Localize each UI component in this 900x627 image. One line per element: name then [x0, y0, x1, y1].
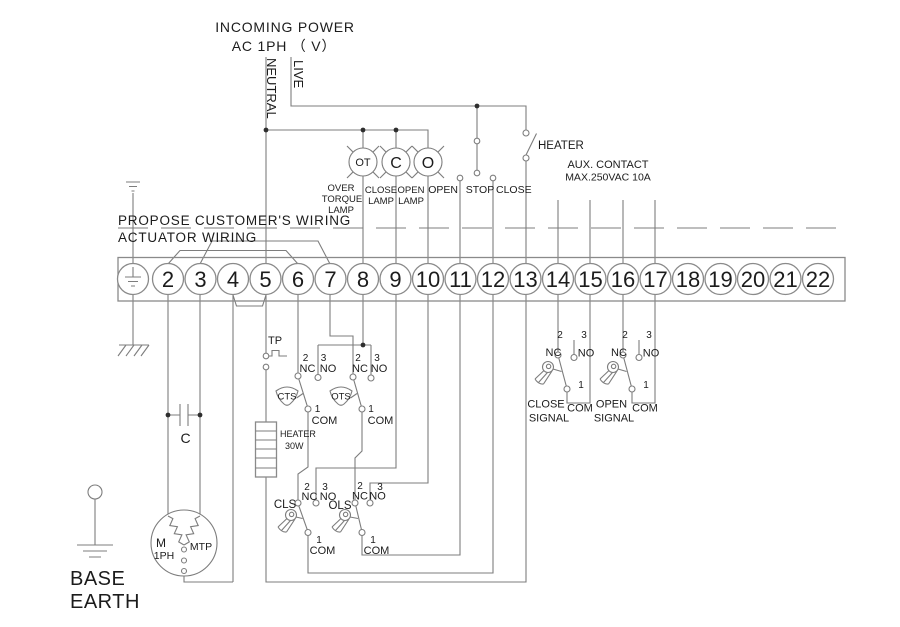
com-label: COM — [312, 415, 338, 427]
open-lamp-label: LAMP — [398, 196, 424, 207]
no-label: NO — [578, 348, 595, 360]
motor-mtp-label: MTP — [190, 541, 212, 553]
nc-label: NC — [611, 347, 627, 359]
terminal-number: 21 — [773, 267, 797, 292]
nc-label: NC — [546, 347, 562, 359]
com-number: 1 — [315, 404, 321, 415]
terminal-number: 15 — [578, 267, 602, 292]
com-number: 1 — [368, 404, 374, 415]
heater-resistor-power: 30W — [285, 441, 304, 451]
terminal-number: 22 — [806, 267, 830, 292]
heater-resistor-label: HEATER — [280, 429, 316, 439]
aux-contact-line2: MAX.250VAC 10A — [565, 172, 651, 184]
ols-label: OLS — [328, 500, 351, 512]
open-signal-label: OPEN — [596, 399, 627, 411]
com-label: COM — [310, 545, 336, 557]
com-number: 1 — [578, 380, 584, 391]
motor-label: M — [156, 536, 166, 550]
terminal-number: 5 — [259, 267, 271, 292]
aux-contact-line1: AUX. CONTACT — [567, 159, 648, 171]
live-wire-label: LIVE — [291, 60, 306, 89]
no-number: 3 — [646, 330, 652, 341]
no-number: 3 — [581, 330, 587, 341]
page-title: INCOMING POWER — [215, 19, 355, 35]
over-torque-lamp-icon: OT — [347, 146, 379, 178]
open-signal-label: SIGNAL — [594, 413, 634, 425]
terminal-number: 17 — [643, 267, 667, 292]
nc-number: 2 — [622, 330, 628, 341]
terminal-number: 7 — [324, 267, 336, 292]
nc-label: NC — [300, 363, 316, 375]
terminal-number: 19 — [708, 267, 732, 292]
close-signal-label: SIGNAL — [529, 413, 569, 425]
lamp-symbol: O — [422, 155, 434, 172]
lamp-symbol: OT — [355, 157, 371, 169]
com-label: COM — [368, 415, 394, 427]
tp-label: TP — [268, 335, 282, 347]
terminal-number: 6 — [292, 267, 304, 292]
close-button-label: CLOSE — [496, 184, 532, 196]
com-label: COM — [632, 403, 658, 415]
over-torque-lamp-label: TORQUE — [322, 194, 362, 205]
actuator-wiring-label: ACTUATOR WIRING — [118, 230, 257, 245]
nc-label: NC — [302, 491, 318, 503]
cts-label: CTS — [278, 392, 297, 403]
com-label: COM — [364, 545, 390, 557]
close-lamp-label: CLOSE — [365, 185, 397, 196]
neutral-wire-label: NEUTRAL — [264, 58, 279, 119]
no-label: NO — [320, 363, 337, 375]
nc-number: 2 — [557, 330, 563, 341]
terminal-number: 11 — [449, 267, 472, 292]
close-lamp-icon: C — [380, 146, 412, 178]
terminal-earth — [118, 264, 149, 295]
terminal-number: 4 — [227, 267, 239, 292]
terminal-number: 20 — [741, 267, 765, 292]
terminal-number: 13 — [513, 267, 537, 292]
no-label: NO — [643, 348, 660, 360]
terminal-number: 14 — [546, 267, 570, 292]
terminal-number: 3 — [194, 267, 206, 292]
base-earth-label: EARTH — [70, 591, 140, 613]
com-label: COM — [567, 403, 593, 415]
open-button-label: OPEN — [428, 184, 458, 196]
cls-label: CLS — [274, 499, 297, 511]
open-lamp-icon: O — [412, 146, 444, 178]
heater-switch-label: HEATER — [538, 140, 584, 152]
terminal-number: 2 — [162, 267, 174, 292]
terminal-number: 8 — [357, 267, 369, 292]
nc-label: NC — [352, 363, 368, 375]
close-lamp-label: LAMP — [368, 196, 394, 207]
over-torque-lamp-label: OVER — [328, 183, 355, 194]
no-label: NO — [369, 491, 386, 503]
terminal-number: 16 — [611, 267, 635, 292]
no-label: NO — [371, 363, 388, 375]
lamp-symbol: C — [390, 155, 402, 172]
ots-label: OTS — [331, 392, 351, 403]
motor-symbol: M 1PH MTP — [151, 510, 217, 576]
nc-label: NC — [352, 491, 368, 503]
wiring-diagram: OT C O OVER TORQUE LAMP CLOSE LAMP OPEN … — [0, 0, 900, 627]
terminal-number: 10 — [416, 267, 440, 292]
stop-button-label: STOP — [466, 184, 494, 196]
aux-contact-note: AUX. CONTACT MAX.250VAC 10A — [565, 159, 651, 184]
close-signal-label: CLOSE — [527, 399, 564, 411]
customer-wiring-label: PROPOSE CUSTOMER'S WIRING — [118, 213, 351, 228]
open-lamp-label: OPEN — [398, 185, 425, 196]
com-number: 1 — [643, 380, 649, 391]
base-earth-label: BASE — [70, 568, 125, 590]
terminal-number: 9 — [389, 267, 401, 292]
terminal-strip-terminals: 2345678910111213141516171819202122 — [153, 264, 834, 295]
motor-phase-label: 1PH — [154, 550, 174, 562]
capacitor-label: C — [181, 430, 192, 446]
background — [0, 0, 900, 627]
page-subtitle: AC 1PH （ V） — [232, 38, 337, 54]
capacitor-symbol: C — [181, 430, 192, 446]
terminal-number: 12 — [481, 267, 505, 292]
terminal-number: 18 — [676, 267, 700, 292]
